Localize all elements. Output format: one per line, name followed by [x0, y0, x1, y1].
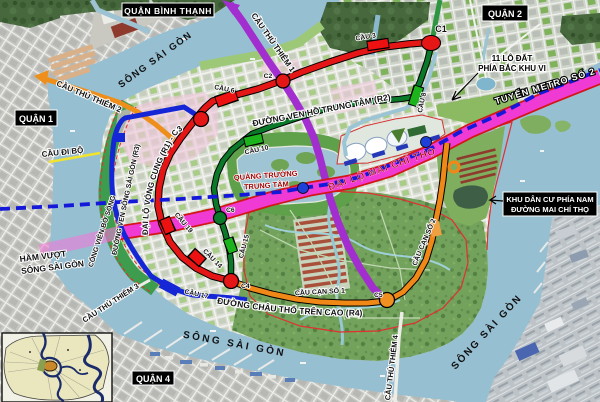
svg-text:C1: C1 — [435, 24, 447, 34]
svg-text:KHU DÂN CƯ PHÍA NAM: KHU DÂN CƯ PHÍA NAM — [506, 195, 593, 204]
svg-text:PHÍA BẮC KHU VI: PHÍA BẮC KHU VI — [478, 64, 546, 73]
svg-text:QUẬN BÌNH THẠNH: QUẬN BÌNH THẠNH — [124, 5, 212, 16]
svg-text:QUẬN 2: QUẬN 2 — [488, 8, 522, 19]
svg-text:C5: C5 — [374, 292, 383, 299]
svg-text:11 LÔ ĐẤT: 11 LÔ ĐẤT — [492, 53, 533, 63]
svg-text:C2: C2 — [264, 73, 273, 80]
svg-text:QUẬN 1: QUẬN 1 — [19, 113, 53, 124]
svg-text:ĐƯỜNG MAI CHÍ THỌ: ĐƯỜNG MAI CHÍ THỌ — [511, 205, 589, 214]
svg-text:C4: C4 — [241, 283, 250, 290]
svg-text:QUẬN 4: QUẬN 4 — [136, 373, 170, 384]
svg-text:C6: C6 — [226, 207, 235, 214]
